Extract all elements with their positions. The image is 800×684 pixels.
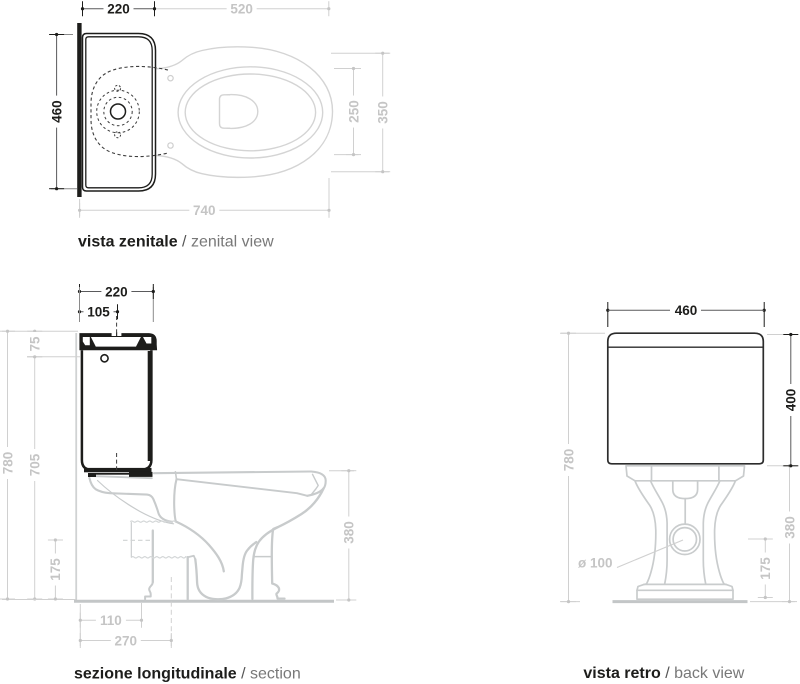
svg-text:350: 350 [376, 101, 391, 124]
svg-text:380: 380 [342, 521, 357, 544]
svg-text:175: 175 [758, 557, 773, 580]
svg-text:sezione longitudinale / sectio: sezione longitudinale / section [74, 666, 301, 683]
svg-text:780: 780 [561, 449, 576, 472]
svg-text:75: 75 [27, 336, 42, 352]
svg-text:520: 520 [230, 2, 253, 17]
svg-text:740: 740 [193, 203, 216, 218]
svg-text:vista zenitale / zenital view: vista zenitale / zenital view [78, 234, 274, 251]
svg-text:220: 220 [107, 2, 130, 17]
svg-text:110: 110 [100, 613, 122, 628]
svg-text:vista retro / back view: vista retro / back view [583, 665, 744, 682]
svg-text:270: 270 [115, 633, 138, 648]
svg-text:380: 380 [782, 516, 797, 539]
svg-text:175: 175 [48, 558, 63, 581]
svg-text:705: 705 [27, 453, 42, 476]
svg-text:460: 460 [675, 303, 698, 318]
svg-text:780: 780 [0, 452, 15, 475]
svg-text:250: 250 [346, 100, 361, 123]
svg-text:400: 400 [784, 389, 799, 412]
svg-text:220: 220 [105, 284, 128, 299]
svg-text:105: 105 [87, 305, 110, 320]
svg-text:ø 100: ø 100 [578, 556, 613, 571]
svg-text:460: 460 [49, 100, 64, 123]
